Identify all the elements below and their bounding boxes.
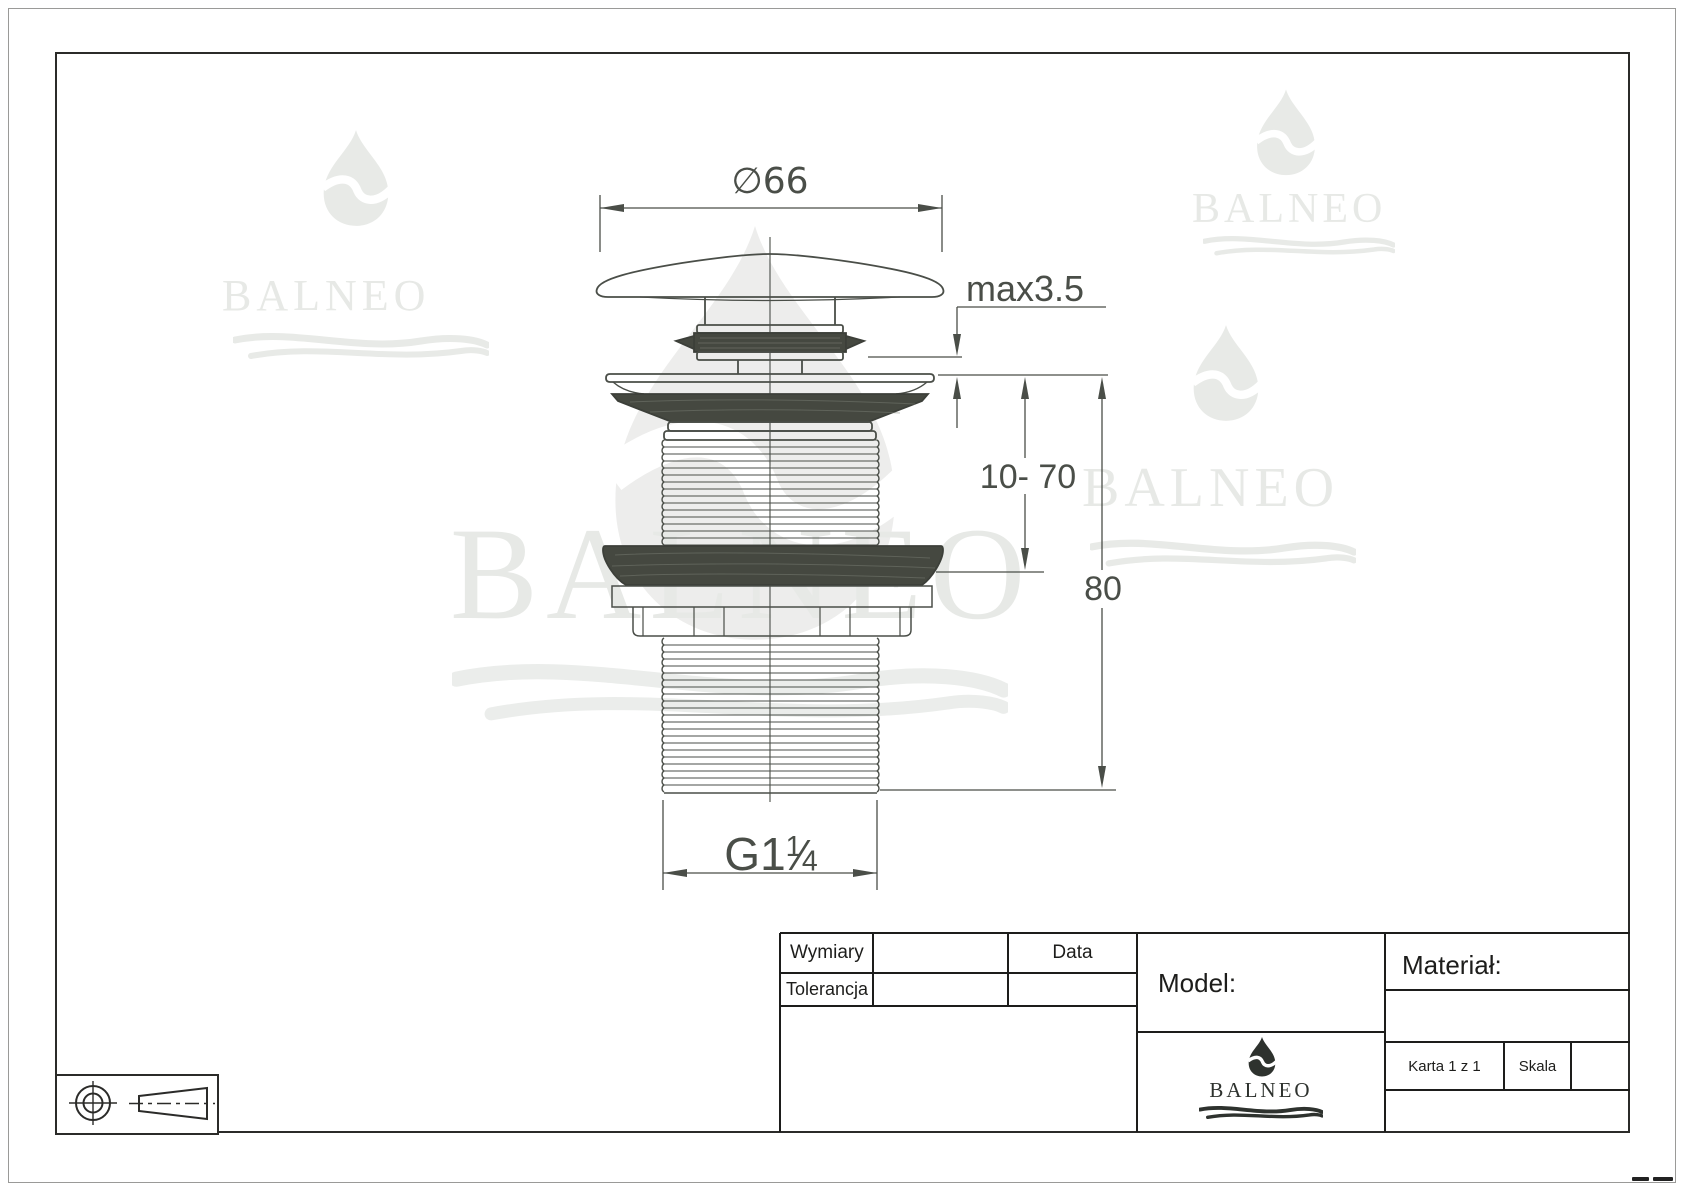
drawing-sheet: BALNEO BALNEO BALNEO BALNEO	[0, 0, 1684, 1190]
titleblock-tolerancja-label: Tolerancja	[786, 973, 873, 1006]
balneo-flame-icon	[1246, 1037, 1278, 1079]
balneo-logo: BALNEO	[1137, 1032, 1385, 1132]
balneo-logo-text: BALNEO	[1137, 1080, 1385, 1101]
titleblock-data-label: Data	[1008, 933, 1137, 973]
corner-signature-marks	[1632, 1177, 1676, 1183]
titleblock-model-label: Model:	[1158, 968, 1236, 999]
titleblock-wymiary-label: Wymiary	[790, 933, 873, 973]
titleblock-material-label: Materiał:	[1402, 950, 1502, 981]
titleblock-skala-label: Skala	[1504, 1042, 1571, 1090]
titleblock-karta-label: Karta 1 z 1	[1385, 1042, 1504, 1090]
title-block-grid	[0, 0, 1684, 1190]
balneo-logo-wave	[1199, 1102, 1323, 1122]
